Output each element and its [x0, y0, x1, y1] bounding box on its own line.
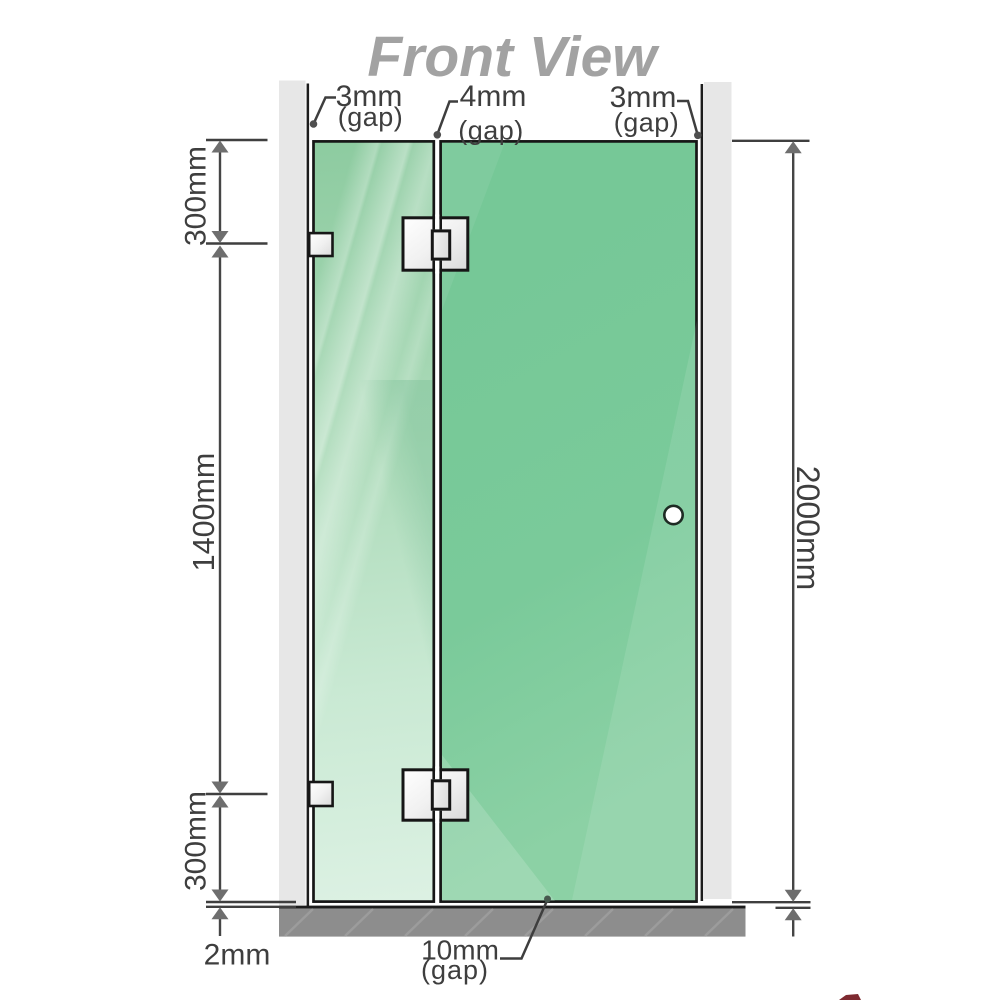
svg-text:2mm: 2mm: [204, 939, 271, 972]
svg-text:1400mm: 1400mm: [187, 453, 221, 572]
svg-text:300mm: 300mm: [180, 791, 213, 891]
svg-text:2000mm: 2000mm: [790, 466, 826, 591]
svg-text:(gap): (gap): [614, 108, 680, 138]
svg-text:(gap): (gap): [458, 116, 524, 146]
svg-text:(gap): (gap): [338, 102, 404, 132]
svg-text:4mm: 4mm: [460, 80, 527, 113]
svg-text:(gap): (gap): [421, 955, 489, 985]
svg-text:300mm: 300mm: [180, 146, 213, 246]
